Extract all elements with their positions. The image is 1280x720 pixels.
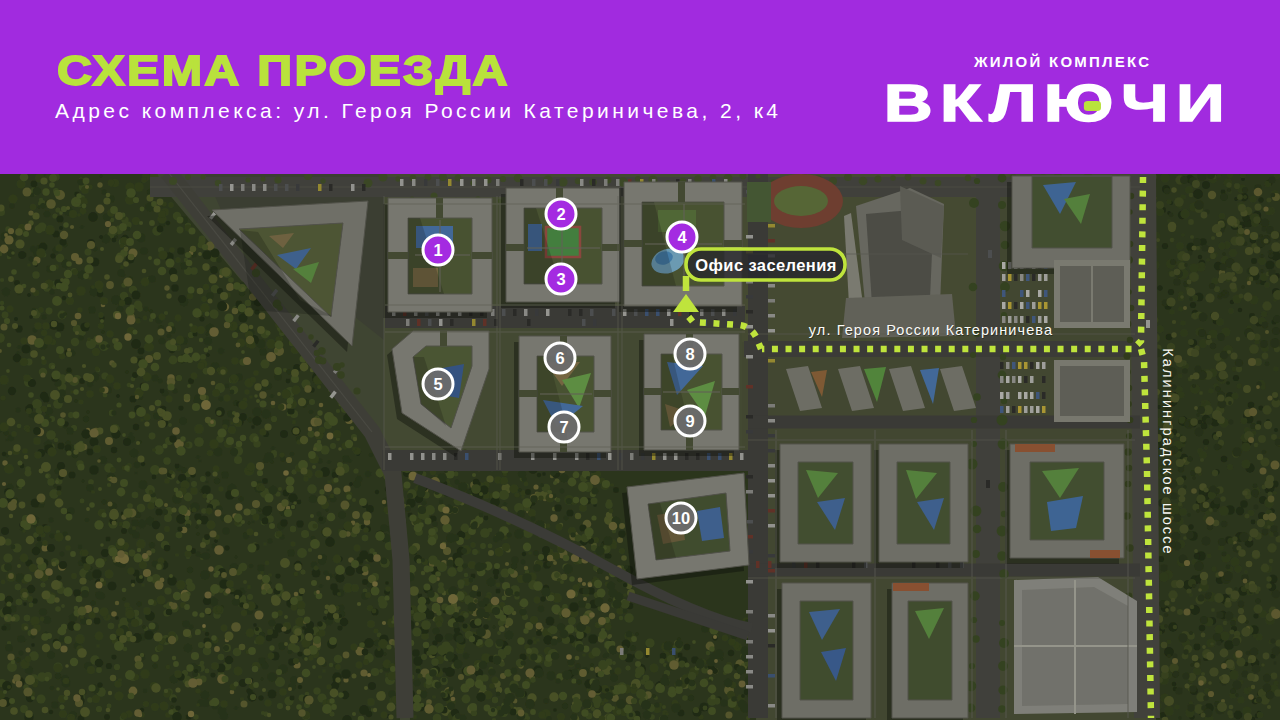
svg-text:1: 1 [433, 241, 442, 259]
svg-text:5: 5 [433, 375, 442, 393]
svg-text:3: 3 [556, 270, 565, 288]
svg-text:Калининградское шоссе: Калининградское шоссе [1160, 348, 1176, 555]
svg-text:Офис заселения: Офис заселения [695, 256, 836, 274]
svg-text:8: 8 [685, 345, 694, 363]
svg-text:4: 4 [677, 228, 687, 246]
svg-text:ул. Героя России Катериничева: ул. Героя России Катериничева [809, 322, 1053, 338]
svg-text:10: 10 [672, 509, 690, 527]
svg-text:7: 7 [559, 418, 568, 436]
svg-text:2: 2 [556, 205, 565, 223]
svg-text:6: 6 [555, 349, 564, 367]
svg-text:9: 9 [685, 412, 694, 430]
